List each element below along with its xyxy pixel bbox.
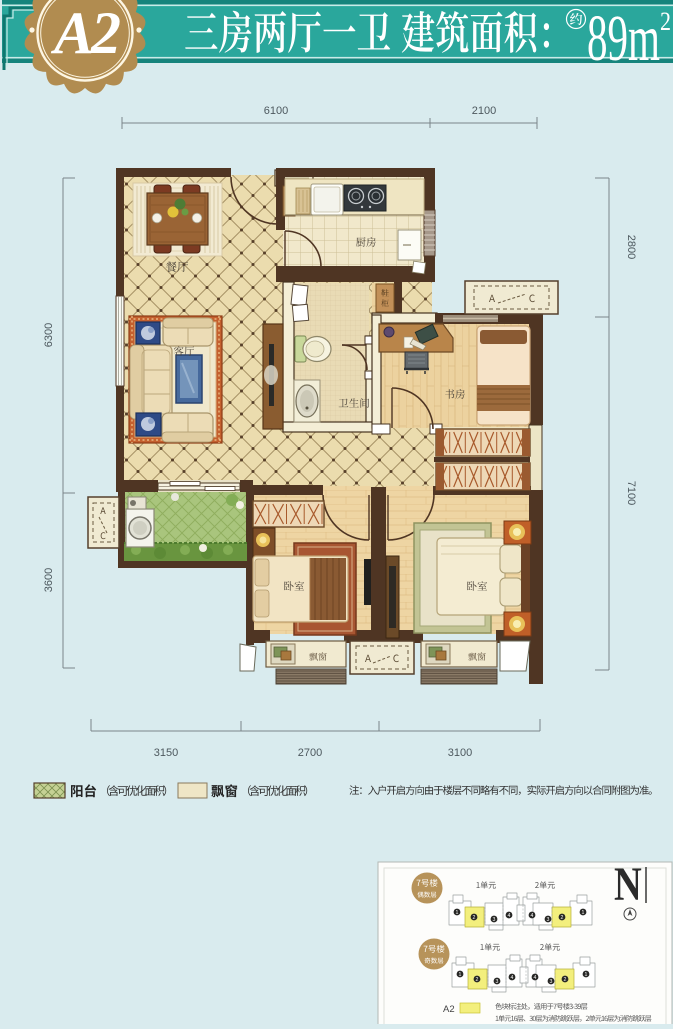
svg-text:7100: 7100 xyxy=(625,481,637,505)
svg-text:3: 3 xyxy=(493,917,496,923)
svg-text:2: 2 xyxy=(476,977,479,983)
svg-text:4: 4 xyxy=(511,975,514,981)
svg-text:3: 3 xyxy=(496,979,499,985)
svg-text:4: 4 xyxy=(508,913,511,919)
svg-text:1: 1 xyxy=(585,972,588,978)
svg-text:2: 2 xyxy=(473,915,476,921)
svg-text:3600: 3600 xyxy=(43,568,55,592)
svg-text:1: 1 xyxy=(456,910,459,916)
svg-text:4: 4 xyxy=(531,913,534,919)
svg-text:6300: 6300 xyxy=(43,323,55,347)
svg-text:89m: 89m xyxy=(587,2,660,75)
svg-text:2100: 2100 xyxy=(472,105,496,117)
svg-text:2: 2 xyxy=(564,977,567,983)
svg-text:1: 1 xyxy=(459,972,462,978)
svg-text:6100: 6100 xyxy=(264,105,288,117)
svg-text:2700: 2700 xyxy=(298,747,322,759)
svg-text:N: N xyxy=(614,858,642,911)
svg-text:1: 1 xyxy=(582,910,585,916)
svg-text:A2: A2 xyxy=(443,1004,455,1015)
svg-text:A2: A2 xyxy=(50,0,120,66)
svg-text:3: 3 xyxy=(547,917,550,923)
svg-text:3: 3 xyxy=(550,979,553,985)
svg-text:4: 4 xyxy=(534,975,537,981)
svg-text:2800: 2800 xyxy=(625,235,637,259)
svg-text:3100: 3100 xyxy=(448,747,472,759)
svg-text:2: 2 xyxy=(561,915,564,921)
svg-text:3150: 3150 xyxy=(154,747,178,759)
svg-text:2: 2 xyxy=(660,7,671,36)
